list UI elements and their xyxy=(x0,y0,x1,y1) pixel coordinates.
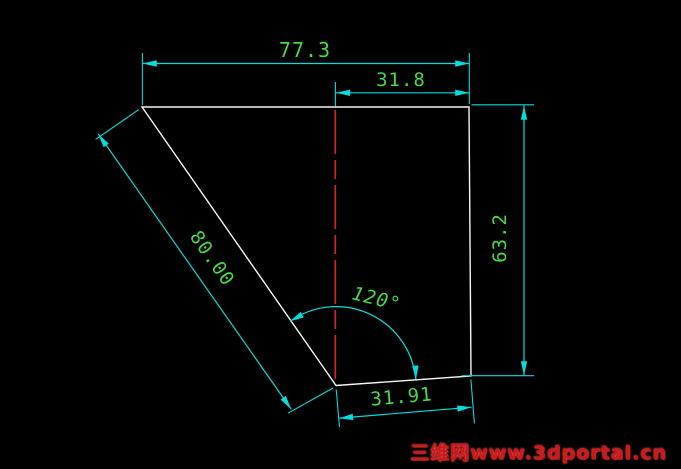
dim-upper-right-arrow-left xyxy=(336,90,350,96)
dim-bottom-width-ext-right xyxy=(471,380,475,424)
dim-angle: 120° xyxy=(288,282,419,379)
dim-top-width-arrow-right xyxy=(455,60,469,66)
cad-canvas: 77.3 31.8 63.2 80.00 31.91 xyxy=(0,0,681,469)
dim-angle-arrow-left xyxy=(288,312,303,324)
dim-angle-value: 120° xyxy=(350,282,404,315)
dim-bottom-width-arrow-left xyxy=(339,414,354,422)
dim-right-height-arrow-bottom xyxy=(521,361,527,375)
dim-bottom-width-value: 31.91 xyxy=(370,383,434,410)
dim-diagonal-line xyxy=(98,134,291,410)
dim-top-width-arrow-left xyxy=(143,60,157,66)
dim-top-width-value: 77.3 xyxy=(279,38,331,62)
dim-diagonal-ext-upper xyxy=(96,110,139,140)
dim-right-height-value: 63.2 xyxy=(489,213,511,263)
dim-diagonal-length: 80.00 xyxy=(96,110,333,414)
dim-bottom-width-line xyxy=(339,407,472,418)
dim-angle-arc xyxy=(290,307,416,380)
dim-right-height-arrow-top xyxy=(521,106,527,120)
dim-bottom-width-arrow-right xyxy=(457,404,472,412)
dim-angle-arrow-bottom xyxy=(412,365,419,379)
cad-drawing-area: 77.3 31.8 63.2 80.00 31.91 xyxy=(0,0,681,469)
dim-diagonal-ext-lower xyxy=(288,388,333,413)
dim-diagonal-arrow-lower xyxy=(281,396,294,411)
dim-upper-right-arrow-right xyxy=(455,90,469,96)
dim-right-height: 63.2 xyxy=(462,105,535,376)
dim-upper-right-value: 31.8 xyxy=(376,69,426,91)
site-watermark: 三维网www.3dportal.cn xyxy=(410,438,667,465)
dim-upper-right-width: 31.8 xyxy=(335,69,469,107)
dim-bottom-width-ext-left xyxy=(336,390,339,428)
dim-diagonal-value: 80.00 xyxy=(185,227,239,291)
dim-bottom-width: 31.91 xyxy=(336,380,474,428)
